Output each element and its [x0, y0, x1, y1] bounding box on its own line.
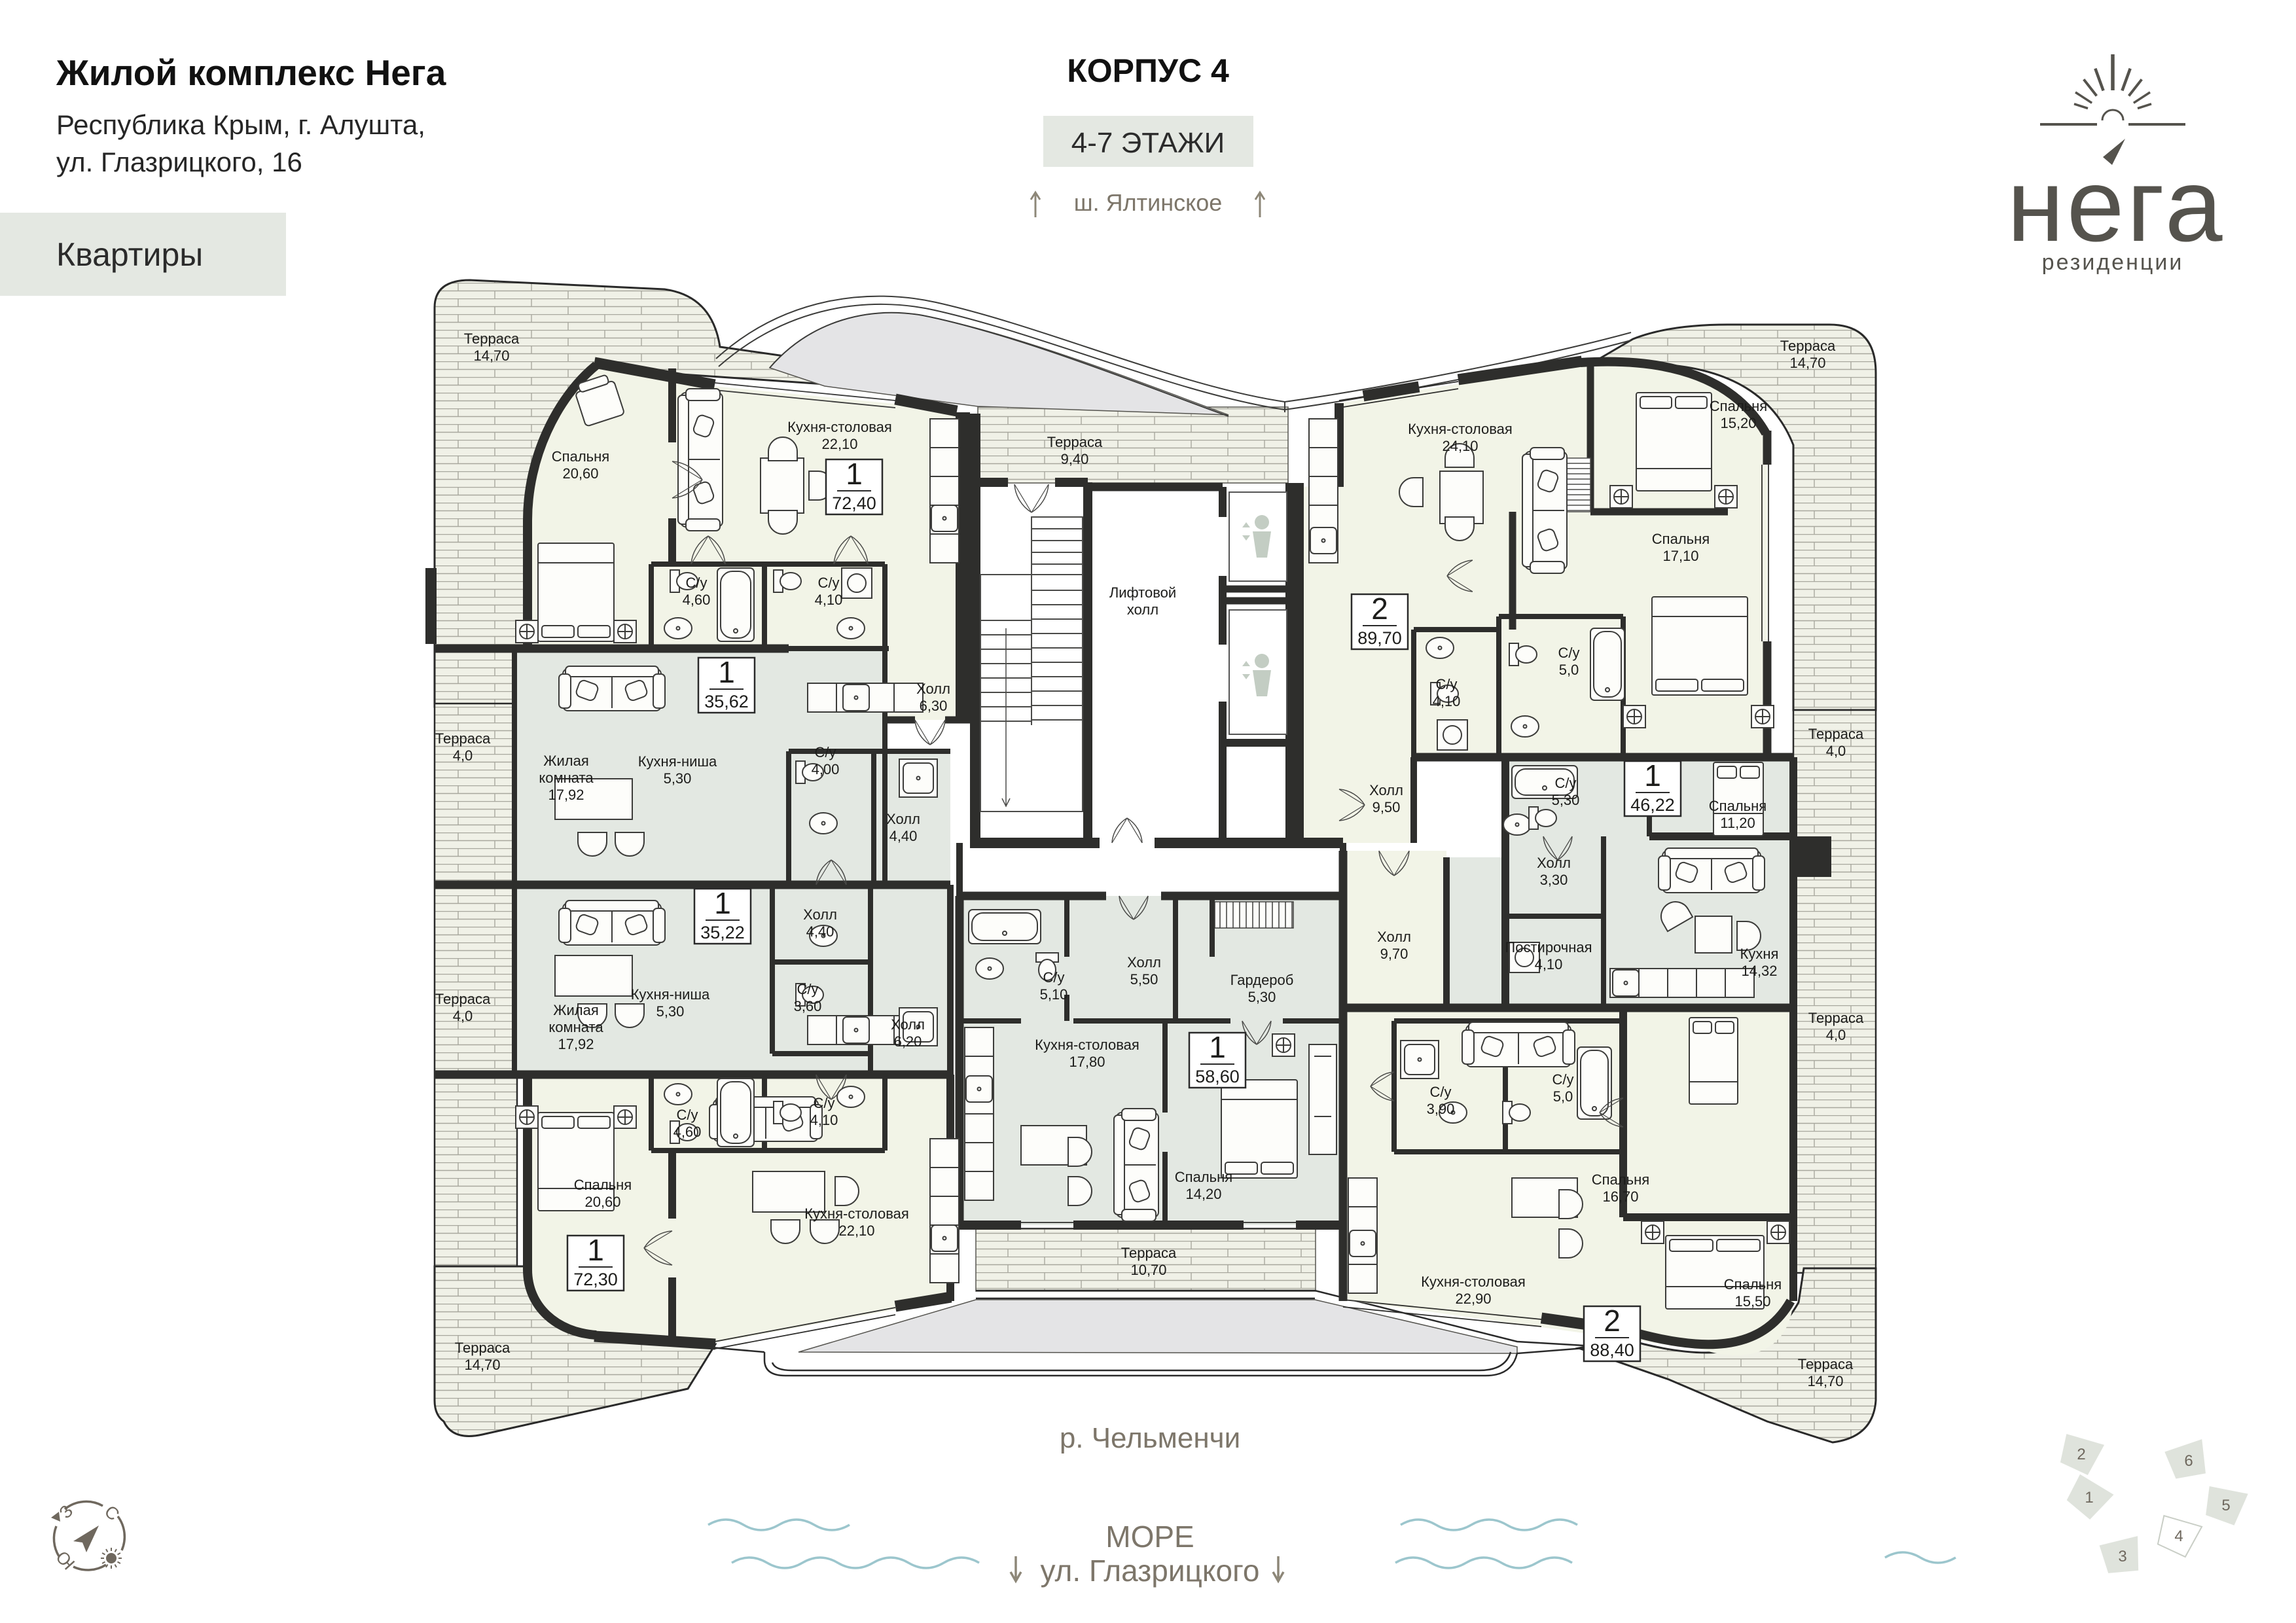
svg-text:4: 4	[2174, 1527, 2183, 1545]
svg-text:2: 2	[1371, 592, 1388, 626]
svg-text:89,70: 89,70	[1357, 628, 1402, 648]
svg-text:Холл9,70: Холл9,70	[1377, 929, 1411, 962]
svg-text:1: 1	[2085, 1489, 2093, 1507]
svg-text:58,60: 58,60	[1195, 1067, 1240, 1086]
svg-text:Квартиры: Квартиры	[56, 236, 203, 273]
svg-text:резиденции: резиденции	[2042, 250, 2184, 275]
svg-text:С/у4,10: С/у4,10	[815, 575, 843, 608]
svg-text:72,40: 72,40	[832, 493, 876, 513]
svg-text:2: 2	[2077, 1446, 2085, 1463]
svg-text:С/у4,60: С/у4,60	[683, 575, 711, 608]
svg-text:Жилой комплекс Нега: Жилой комплекс Нега	[56, 52, 446, 93]
svg-text:ш. Ялтинское: ш. Ялтинское	[1074, 189, 1223, 216]
svg-text:1: 1	[846, 457, 863, 491]
svg-text:С/у5,0: С/у5,0	[1552, 1071, 1574, 1105]
svg-text:С/у4,00: С/у4,00	[812, 744, 840, 777]
svg-text:С/у5,10: С/у5,10	[1040, 969, 1068, 1003]
svg-text:ул. Глазрицкого: ул. Глазрицкого	[1041, 1554, 1260, 1588]
svg-text:КОРПУС 4: КОРПУС 4	[1067, 52, 1229, 89]
svg-text:С/у4,10: С/у4,10	[1433, 676, 1461, 709]
svg-text:Холл4,40: Холл4,40	[803, 906, 837, 940]
svg-text:МОРЕ: МОРЕ	[1105, 1520, 1194, 1554]
svg-text:Холл3,30: Холл3,30	[1537, 855, 1571, 888]
svg-text:1: 1	[718, 655, 735, 689]
svg-text:Холл4,40: Холл4,40	[886, 811, 920, 844]
svg-text:Республика Крым, г. Алушта,: Республика Крым, г. Алушта,	[56, 109, 425, 140]
svg-text:нега: нега	[2007, 148, 2225, 263]
svg-text:6: 6	[2184, 1452, 2193, 1470]
svg-text:1: 1	[714, 886, 731, 920]
svg-text:1: 1	[1644, 758, 1661, 793]
svg-text:Холл6,20: Холл6,20	[891, 1016, 925, 1050]
svg-text:Кухня14,32: Кухня14,32	[1740, 946, 1779, 979]
svg-text:С/у4,60: С/у4,60	[673, 1107, 702, 1140]
svg-text:С/у5,0: С/у5,0	[1558, 645, 1580, 678]
svg-text:Холл6,30: Холл6,30	[916, 681, 950, 714]
svg-text:С/у3,90: С/у3,90	[1427, 1084, 1455, 1117]
svg-text:р. Чельменчи: р. Чельменчи	[1060, 1422, 1240, 1454]
svg-text:Холл5,50: Холл5,50	[1127, 954, 1161, 988]
svg-text:5: 5	[2221, 1497, 2230, 1514]
svg-text:С/у4,10: С/у4,10	[810, 1095, 838, 1128]
svg-text:1: 1	[587, 1233, 604, 1267]
svg-text:ул. Глазрицкого, 16: ул. Глазрицкого, 16	[56, 147, 302, 177]
svg-text:72,30: 72,30	[573, 1270, 618, 1289]
svg-text:1: 1	[1209, 1030, 1226, 1064]
svg-text:3: 3	[2118, 1548, 2126, 1565]
svg-text:2: 2	[1604, 1304, 1621, 1338]
svg-text:С/у5,30: С/у5,30	[1552, 775, 1580, 808]
svg-text:35,62: 35,62	[704, 692, 749, 711]
svg-text:С/у3,60: С/у3,60	[794, 981, 822, 1014]
svg-text:35,22: 35,22	[700, 923, 745, 942]
svg-text:46,22: 46,22	[1630, 795, 1675, 815]
svg-text:Холл9,50: Холл9,50	[1369, 782, 1403, 815]
svg-text:88,40: 88,40	[1590, 1340, 1634, 1360]
svg-text:4-7 ЭТАЖИ: 4-7 ЭТАЖИ	[1071, 127, 1225, 159]
